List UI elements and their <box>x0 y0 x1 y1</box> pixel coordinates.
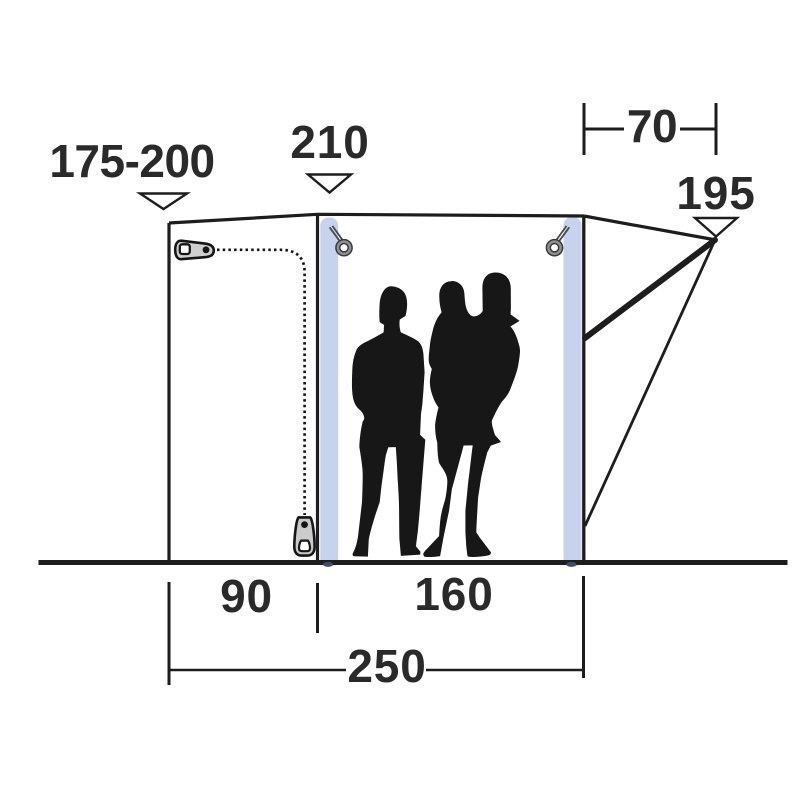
svg-text:250: 250 <box>347 640 426 692</box>
svg-text:210: 210 <box>290 116 369 168</box>
svg-text:175-200: 175-200 <box>49 135 214 187</box>
svg-text:195: 195 <box>676 167 755 219</box>
svg-text:90: 90 <box>220 570 273 622</box>
svg-text:160: 160 <box>414 568 493 620</box>
svg-text:70: 70 <box>627 100 677 152</box>
